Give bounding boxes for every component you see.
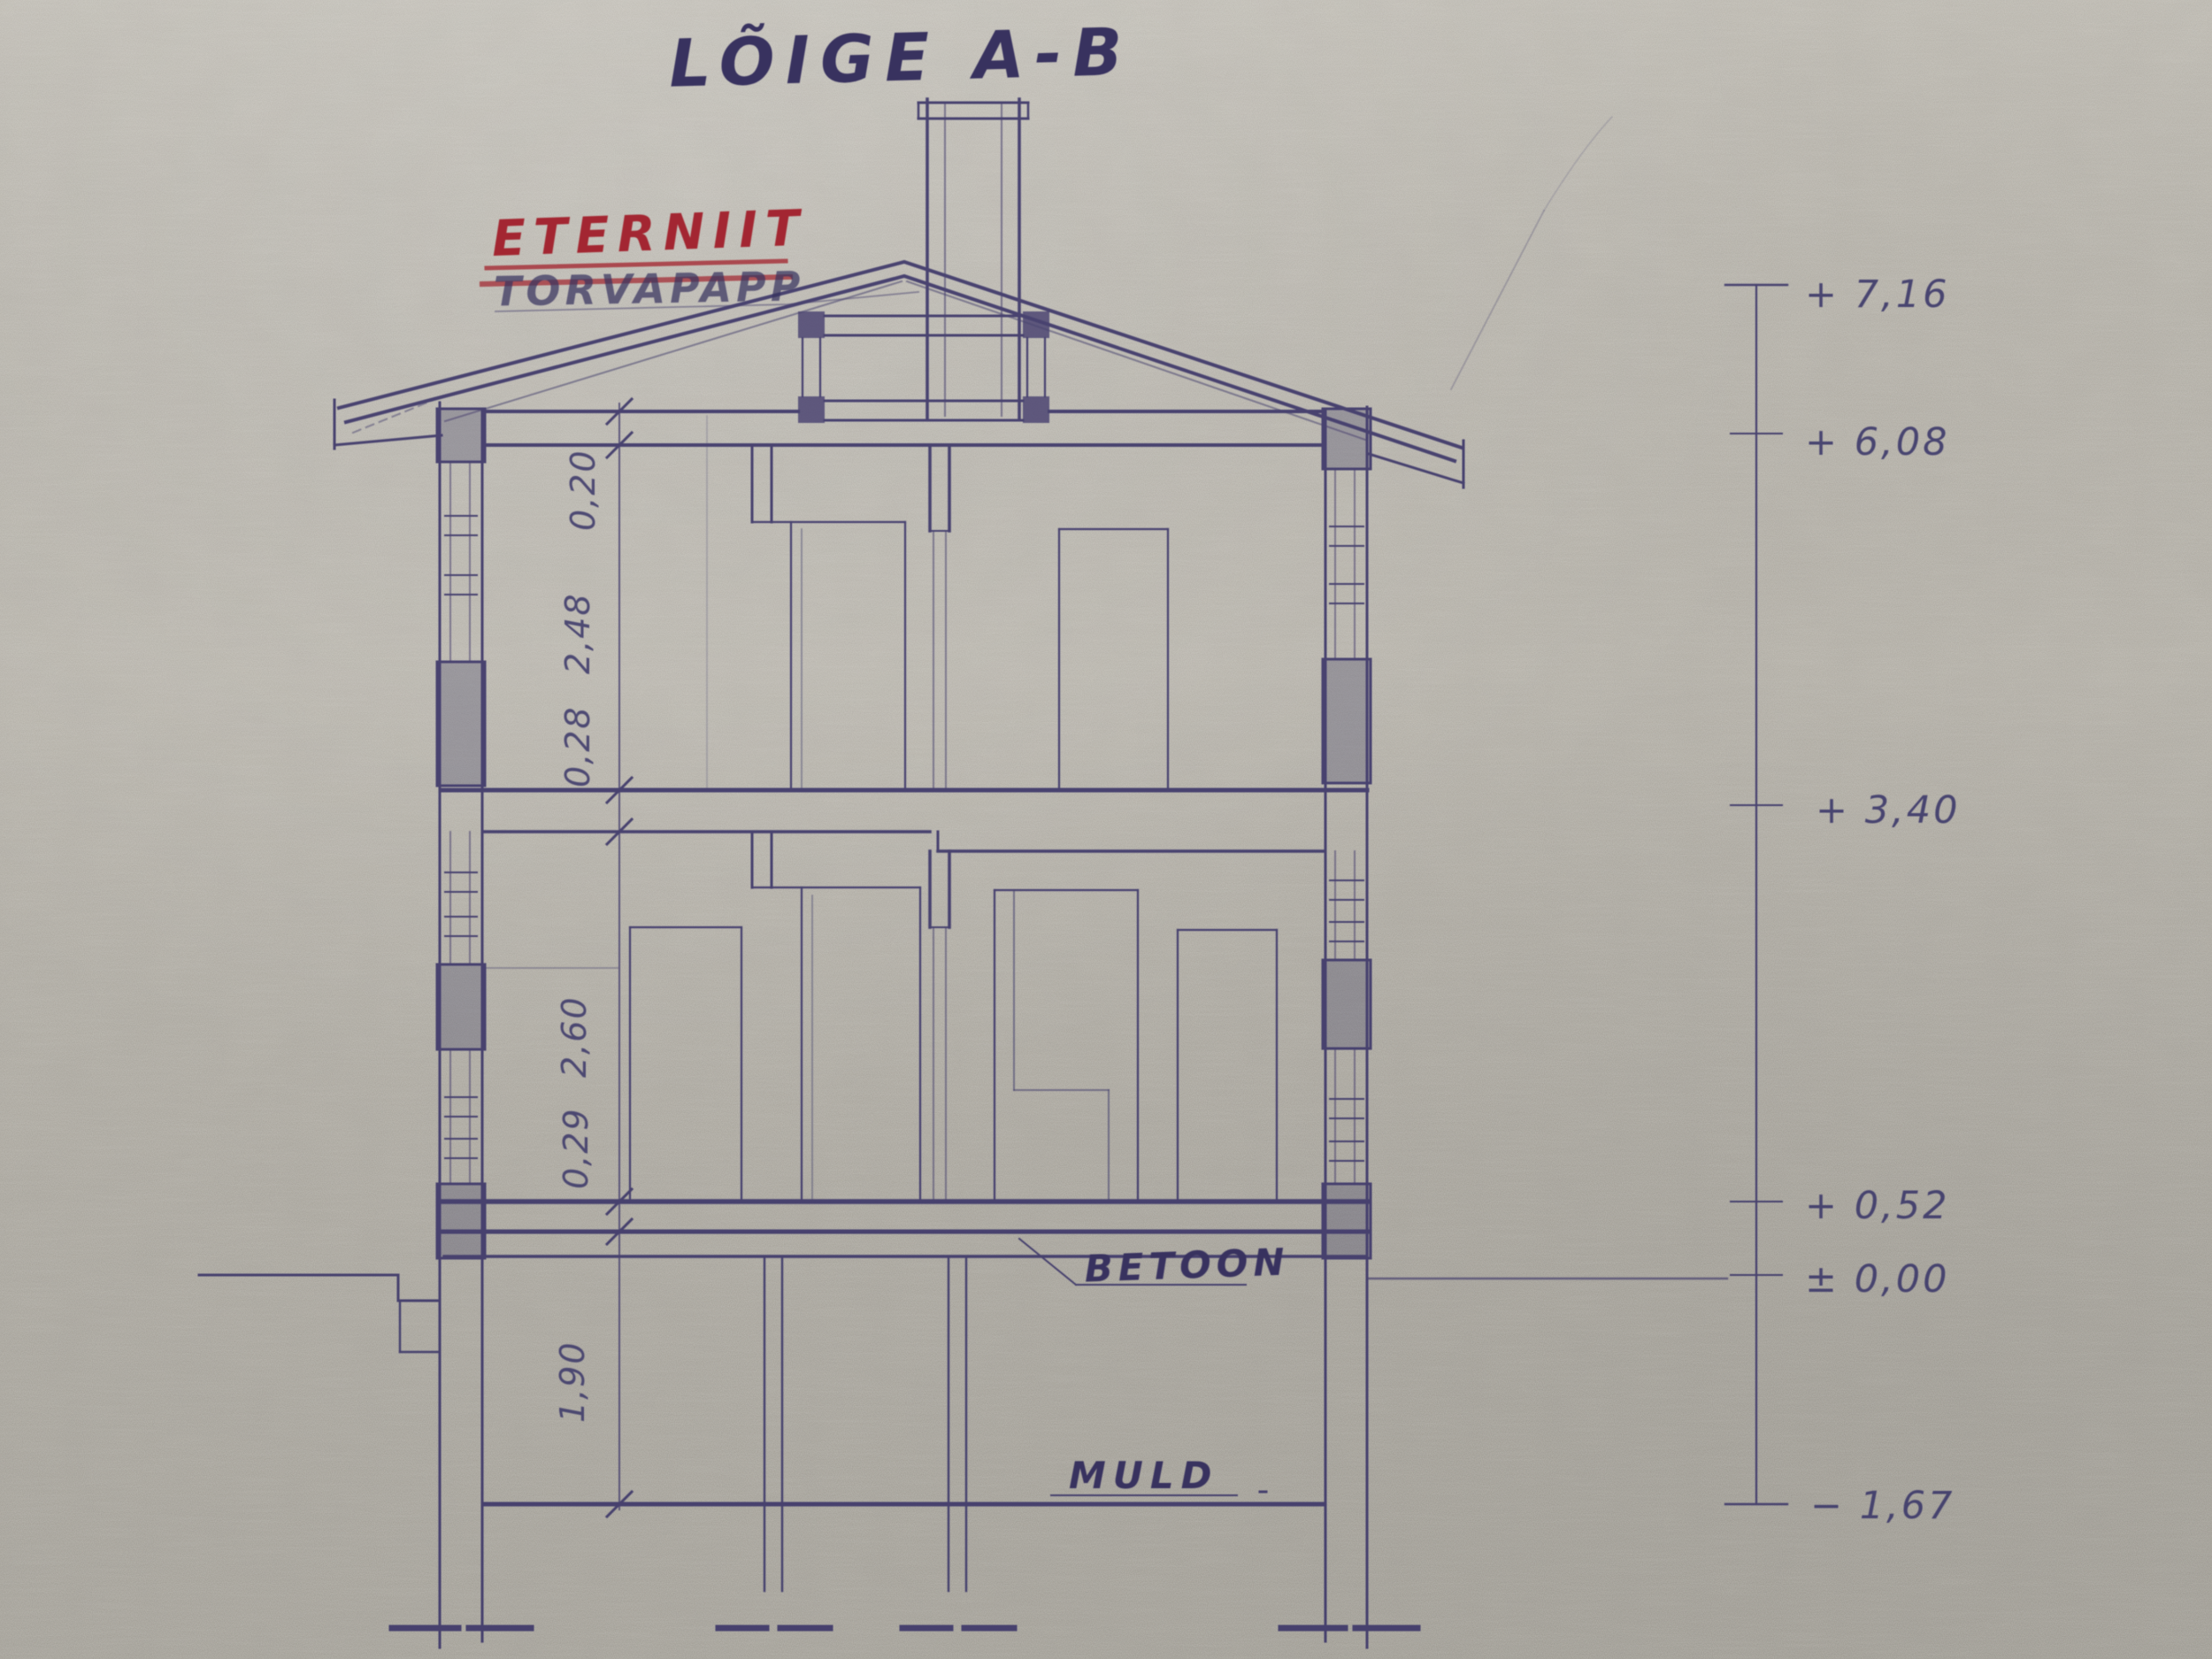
elevation-label: + 7,16	[1805, 273, 1949, 317]
dimension-label: 0,29	[557, 1107, 595, 1189]
dimension-label: 1,90	[553, 1340, 592, 1423]
section-drawing-scan: LÕIGE A-B ETERNIIT TORVAPAPP BETOON MULD…	[0, 0, 2212, 1659]
dimension-label: 2,48	[558, 592, 597, 674]
dimension-label: 0,28	[558, 705, 597, 787]
elevation-label: ± 0,00	[1805, 1257, 1949, 1302]
concrete-label: BETOON	[1084, 1240, 1290, 1291]
dimension-label: 2,60	[555, 995, 594, 1078]
elevation-label: − 1,67	[1810, 1484, 1955, 1528]
elevation-label: + 0,52	[1805, 1184, 1949, 1228]
elevation-label: + 3,40	[1816, 788, 1960, 833]
roof-material-label: ETERNIIT	[491, 200, 809, 268]
soil-label: MULD	[1069, 1454, 1219, 1497]
drawing-title: LÕIGE A-B	[668, 12, 1134, 103]
scanned-blueprint-page: LÕIGE A-B ETERNIIT TORVAPAPP BETOON MULD…	[0, 0, 2212, 1659]
elevation-label: + 6,08	[1805, 420, 1949, 465]
crossed-out-material-label: TORVAPAPP	[493, 262, 804, 315]
dimension-label: 0,20	[564, 449, 603, 531]
